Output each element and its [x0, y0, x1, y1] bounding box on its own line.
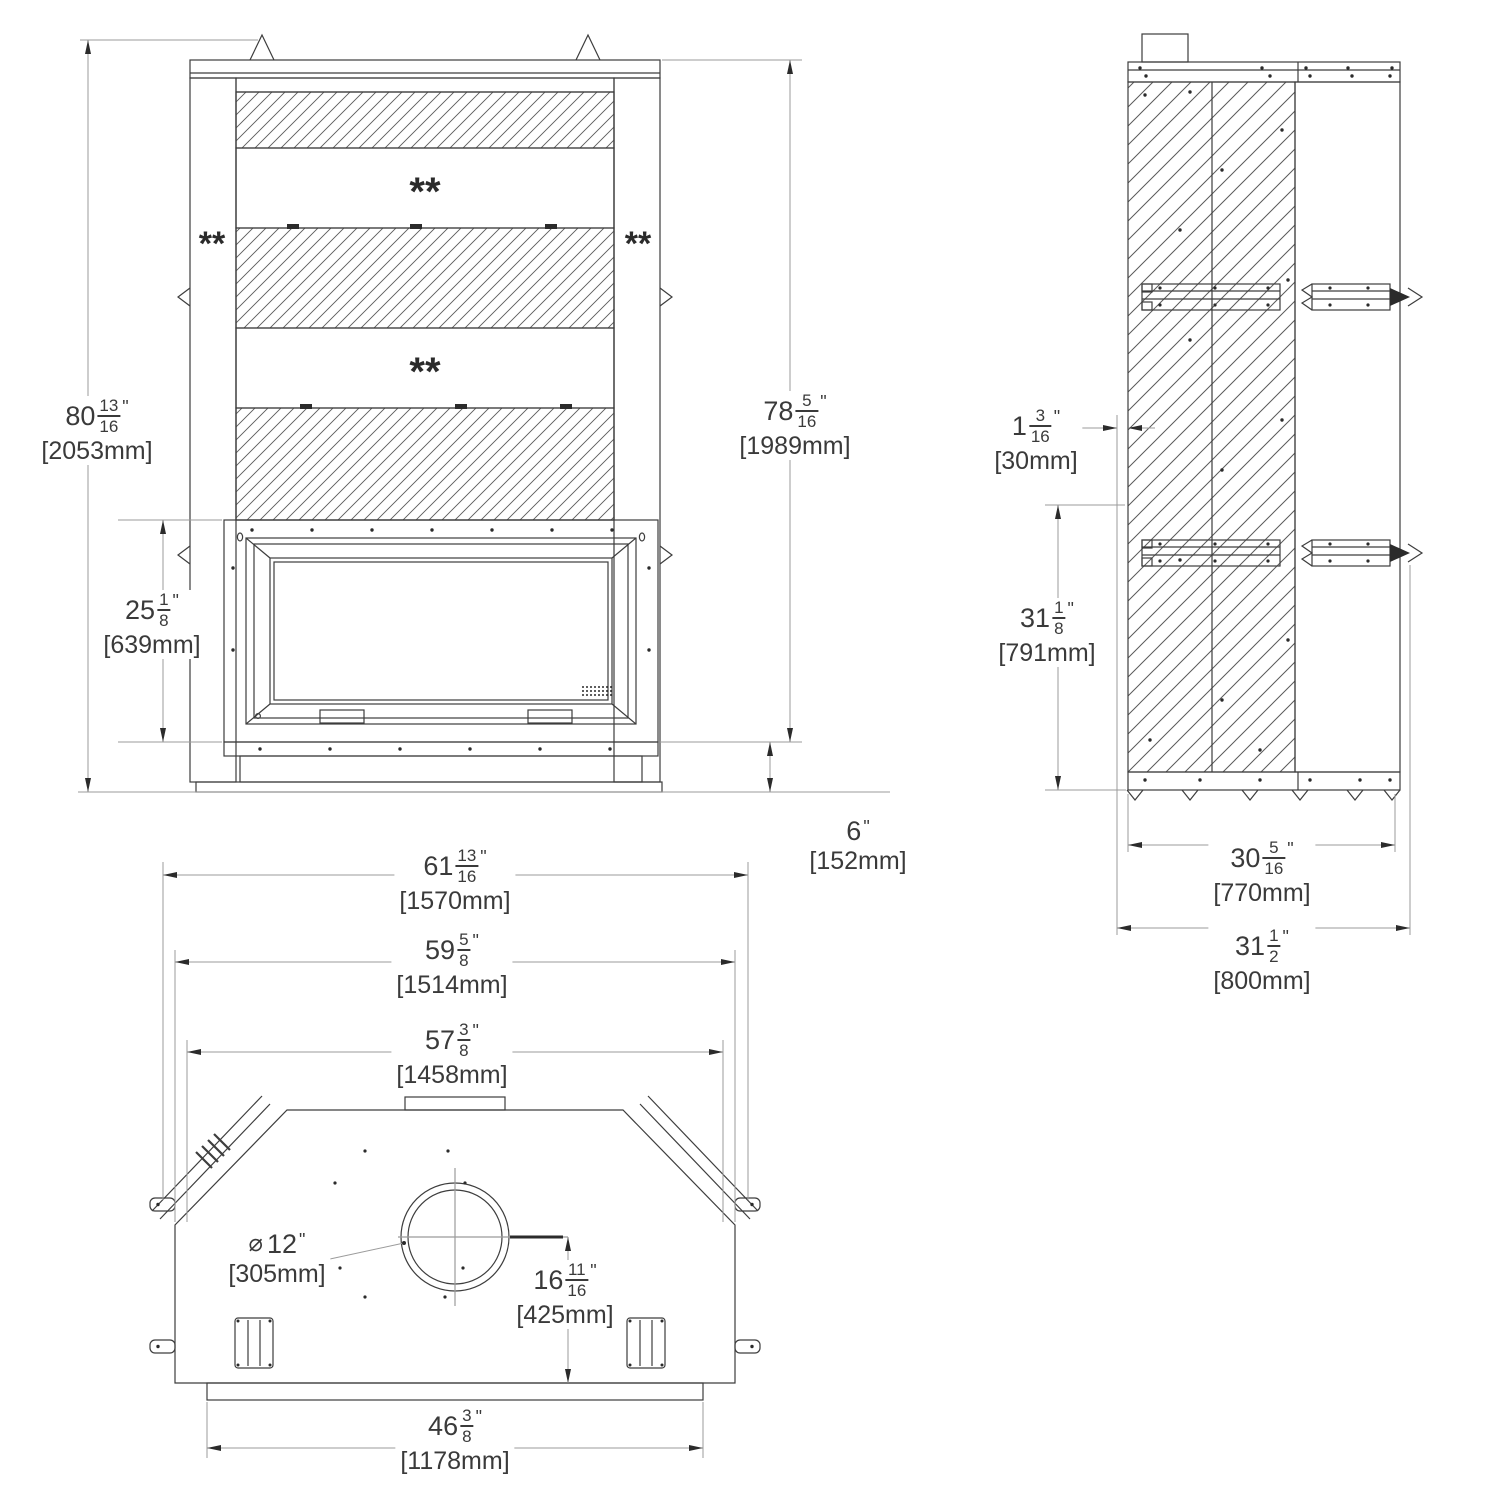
side-tab-icon [660, 288, 672, 306]
side-view [1127, 34, 1422, 800]
dim-mm: [1458mm] [396, 1061, 507, 1089]
dim-front-firebox-height: 2518" [639mm] [98, 590, 205, 659]
base-hearth [196, 742, 662, 792]
dim-bottom-width-base: 4638" [1178mm] [395, 1406, 514, 1475]
dim-mm: [791mm] [998, 639, 1095, 667]
foot-tab-icon [1127, 790, 1143, 800]
right-column [614, 78, 660, 782]
dim-inches: 161116" [516, 1260, 613, 1300]
dim-front-hearth-height: 6" [152mm] [804, 816, 911, 875]
foot-tab-icon [1182, 790, 1198, 800]
insulation-band [236, 408, 614, 520]
dim-mm: [152mm] [809, 847, 906, 875]
diameter-symbol: ⌀ [249, 1231, 263, 1258]
dim-inches: ⌀12" [228, 1229, 325, 1259]
insulation-band [236, 92, 614, 148]
vent-louver [235, 1318, 273, 1368]
dim-bottom-width-face: 5738" [1458mm] [391, 1020, 512, 1089]
firebox-front [224, 520, 658, 742]
dim-mm: [1514mm] [396, 971, 507, 999]
dim-inches: 5738" [396, 1020, 507, 1060]
dim-inches: 3118" [998, 598, 1095, 638]
asterisk-mark: ** [199, 225, 226, 263]
dim-bottom-width-total: 611316" [1570mm] [394, 846, 515, 915]
dim-side-lower-height: 3118" [791mm] [993, 598, 1100, 667]
dim-inches: 3112" [1213, 926, 1310, 966]
dim-inches: 30516" [1213, 838, 1310, 878]
top-tab [405, 1097, 505, 1110]
dim-side-top-offset: 1316" [30mm] [989, 406, 1082, 475]
dim-front-right-height: 78516" [1989mm] [734, 391, 855, 460]
dim-bottom-flue-diameter: ⌀12" [305mm] [223, 1229, 330, 1288]
dim-mm: [1570mm] [399, 887, 510, 915]
side-tab-icon [178, 288, 190, 306]
asterisk-mark: ** [625, 225, 652, 263]
insulation-band [236, 228, 614, 328]
hanger-tab-icon [250, 35, 274, 60]
dim-mm: [1989mm] [739, 432, 850, 460]
dim-inches: 4638" [400, 1406, 509, 1446]
side-tab-icon [178, 546, 190, 564]
dim-mm: [800mm] [1213, 967, 1310, 995]
dim-inches: 6" [809, 816, 906, 846]
vent-louver [627, 1318, 665, 1368]
dim-inches: 5958" [396, 930, 507, 970]
front-view [178, 35, 672, 792]
flue-stub [1142, 34, 1188, 62]
dim-mm: [770mm] [1213, 879, 1310, 907]
hanger-tab-icon [576, 35, 600, 60]
dim-mm: [639mm] [103, 631, 200, 659]
asterisk-mark: ** [409, 350, 441, 394]
foot-tab-icon [1384, 790, 1400, 800]
dim-mm: [1178mm] [400, 1447, 509, 1475]
left-column [190, 78, 236, 782]
door-latch [320, 710, 364, 723]
bottom-plate [207, 1383, 703, 1400]
brand-logo [582, 686, 612, 696]
dim-side-depth-total: 3112" [800mm] [1208, 926, 1315, 995]
dim-bottom-width-mid: 5958" [1514mm] [391, 930, 512, 999]
dim-mm: [30mm] [994, 447, 1077, 475]
door-latch [528, 710, 572, 723]
dim-inches: 78516" [739, 391, 850, 431]
dim-inches: 801316" [41, 396, 152, 436]
dim-mm: [305mm] [228, 1260, 325, 1288]
dim-inches: 2518" [103, 590, 200, 630]
dim-side-depth-inner: 30516" [770mm] [1208, 838, 1315, 907]
dim-front-total-height: 801316" [2053mm] [36, 396, 157, 465]
dim-bottom-flue-offset: 161116" [425mm] [511, 1260, 618, 1329]
dim-inches: 1316" [994, 406, 1077, 446]
dim-mm: [2053mm] [41, 437, 152, 465]
glass-door [270, 558, 612, 704]
foot-tab-icon [1347, 790, 1363, 800]
dim-mm: [425mm] [516, 1301, 613, 1329]
technical-drawing-page: ** ** ** ** [0, 0, 1500, 1500]
side-tab-icon [660, 546, 672, 564]
dim-inches: 611316" [399, 846, 510, 886]
foot-tab-icon [1292, 790, 1308, 800]
foot-tab-icon [1242, 790, 1258, 800]
asterisk-mark: ** [409, 170, 441, 214]
